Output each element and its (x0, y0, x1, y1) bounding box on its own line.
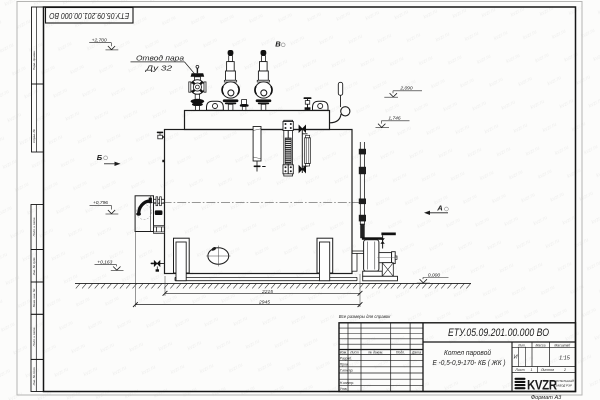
svg-text:1: 1 (531, 368, 533, 372)
svg-text:Котел паровой: Котел паровой (444, 349, 491, 357)
svg-text:Инв. № подл.: Инв. № подл. (32, 367, 36, 386)
svg-text:Б: Б (97, 153, 103, 162)
svg-text:Утв.: Утв. (340, 387, 348, 391)
svg-text:Лист: Лист (349, 350, 359, 354)
svg-text:Взам. инв. №: Взам. инв. № (32, 288, 36, 307)
svg-text:ЕТУ.05.09.201.00.000 ВО: ЕТУ.05.09.201.00.000 ВО (49, 11, 129, 21)
svg-text:1:15: 1:15 (559, 356, 571, 362)
svg-text:Изм.: Изм. (340, 350, 347, 354)
svg-text:Масса: Масса (535, 343, 545, 347)
svg-text:И: И (514, 355, 518, 361)
svg-text:Разраб.: Разраб. (340, 356, 352, 360)
svg-text:Перв. примен.: Перв. примен. (32, 50, 36, 70)
svg-text:А: А (436, 203, 442, 212)
svg-text:2945: 2945 (258, 299, 270, 305)
svg-text:Отвод пара: Отвод пара (136, 53, 184, 62)
svg-text:№ докум.: № докум. (368, 350, 383, 354)
svg-text:KVZR: KVZR (527, 376, 557, 392)
svg-text:В: В (275, 39, 281, 48)
svg-text:Е -0,5-0,9-170- КБ ( ЖК ): Е -0,5-0,9-170- КБ ( ЖК ) (433, 360, 506, 367)
svg-text:Лист: Лист (514, 368, 524, 372)
svg-text:Пров.: Пров. (340, 362, 349, 366)
svg-text:Дата: Дата (411, 350, 421, 354)
svg-text:Подп.: Подп. (396, 350, 405, 354)
svg-text:КОТЕЛЬНЫЙ: КОТЕЛЬНЫЙ (556, 379, 575, 383)
svg-text:Лит.: Лит. (517, 343, 526, 347)
svg-text:Листов: Листов (540, 368, 554, 372)
svg-text:Масштаб: Масштаб (554, 343, 570, 347)
svg-text:Справ. №: Справ. № (32, 128, 36, 142)
svg-text:2: 2 (563, 368, 566, 372)
svg-text:Т.контр.: Т.контр. (340, 369, 354, 373)
svg-text:Формат А3: Формат А3 (531, 395, 562, 400)
svg-text:Ду 32: Ду 32 (145, 63, 172, 72)
svg-text:ЗАВОД РЭР: ЗАВОД РЭР (556, 384, 572, 388)
svg-text:Все размеры для справок: Все размеры для справок (339, 314, 391, 319)
svg-text:Инв. № дубл.: Инв. № дубл. (32, 257, 36, 276)
svg-text:Н.контр.: Н.контр. (340, 381, 354, 385)
svg-text:2215: 2215 (261, 289, 273, 295)
svg-text:ЕТУ.05.09.201.00.000 ВО: ЕТУ.05.09.201.00.000 ВО (448, 327, 549, 339)
svg-text:Подп. и дата: Подп. и дата (32, 327, 36, 346)
svg-text:Подп. и дата: Подп. и дата (32, 217, 36, 236)
